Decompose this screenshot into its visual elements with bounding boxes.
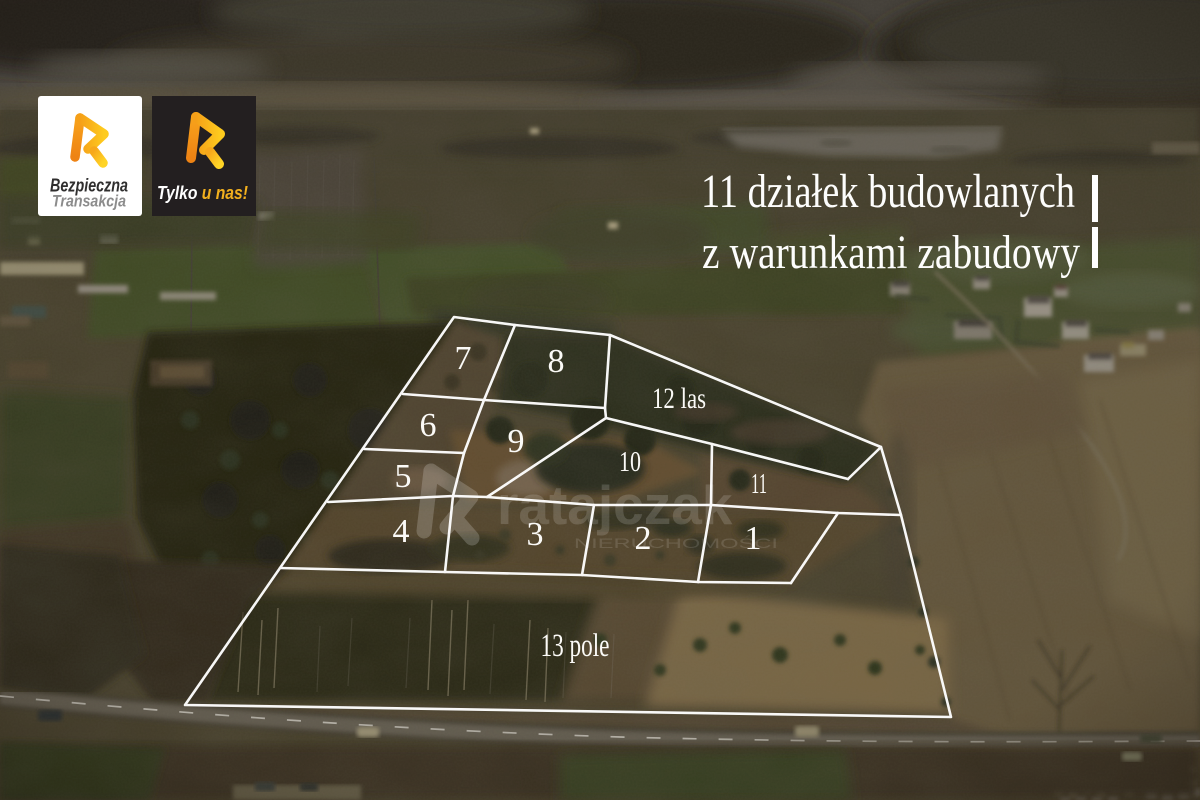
svg-text:NIERUCHOMOŚCI: NIERUCHOMOŚCI (574, 534, 778, 551)
svg-text:6: 6 (420, 407, 437, 444)
svg-text:12 las: 12 las (652, 382, 706, 415)
svg-text:13 pole: 13 pole (541, 628, 610, 664)
svg-text:7: 7 (455, 340, 472, 377)
svg-text:5: 5 (395, 458, 412, 495)
svg-text:4: 4 (393, 513, 410, 550)
svg-text:Tylko u nas!: Tylko u nas! (157, 183, 248, 203)
svg-text:ratajczak: ratajczak (497, 474, 733, 536)
svg-text:8: 8 (548, 343, 565, 380)
svg-text:9: 9 (508, 423, 525, 460)
svg-text:11 działek budowlanych: 11 działek budowlanych (701, 165, 1075, 218)
svg-text:Transakcja: Transakcja (52, 193, 126, 211)
svg-text:z warunkami zabudowy: z warunkami zabudowy (702, 226, 1080, 279)
svg-text:11: 11 (751, 468, 767, 500)
